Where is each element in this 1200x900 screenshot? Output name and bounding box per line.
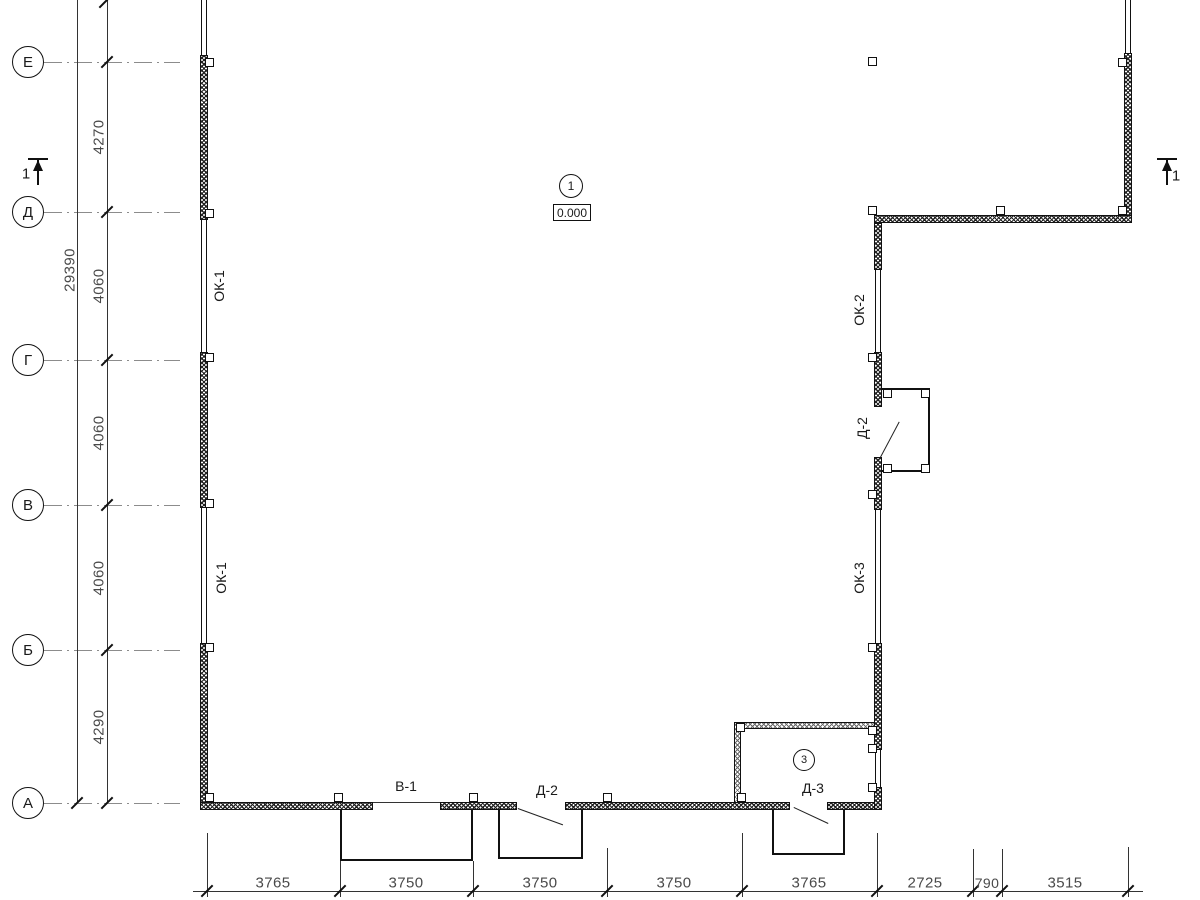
axis-label: Б	[23, 642, 33, 659]
entrance-porch-d3	[772, 810, 845, 855]
elevation-value: 0.000	[557, 206, 587, 220]
wall-jamb-tab	[868, 783, 877, 792]
dim-value-e-d: 4270	[91, 120, 108, 155]
dim-value-bottom-2: 3750	[523, 875, 558, 892]
wall-jamb-tab	[205, 499, 214, 508]
section-arrow-up-icon	[1162, 160, 1172, 171]
axis-line-e	[44, 62, 180, 63]
window-label-ok2: ОК-2	[851, 294, 867, 326]
wall-jamb-tab	[868, 643, 877, 652]
dim-line-total-vertical	[77, 0, 78, 803]
door-label-d3: Д-3	[802, 780, 824, 796]
window-glazing	[201, 0, 207, 55]
wall-jamb-tab	[868, 490, 877, 499]
wall-jamb-tab	[1118, 206, 1127, 215]
dim-value-bottom-1: 3750	[389, 875, 424, 892]
exterior-wall-segment	[1124, 53, 1132, 223]
wall-jamb-tab	[868, 353, 877, 362]
wall-jamb-tab	[205, 209, 214, 218]
interior-wall-segment	[734, 722, 741, 803]
exterior-wall-segment	[874, 457, 882, 510]
opening-lintel-line	[373, 802, 440, 803]
dim-value-g-v: 4060	[91, 416, 108, 451]
wall-jamb-tab	[603, 793, 612, 802]
floor-plan-sheet: Е Д Г В Б А 4270 4060 4060 4060 4290 293…	[0, 0, 1200, 900]
window-glazing-ok3	[875, 510, 881, 643]
window-label-ok1-upper: ОК-1	[211, 270, 227, 302]
window-label-ok1-lower: ОК-1	[213, 562, 229, 594]
wall-jamb-tab	[1118, 58, 1127, 67]
axis-bubble-e: Е	[12, 46, 44, 78]
wall-jamb-tab	[883, 389, 892, 398]
wall-jamb-tab	[334, 793, 343, 802]
wall-jamb-tab	[736, 723, 745, 732]
room-number: 3	[801, 754, 807, 766]
exterior-wall-segment	[200, 802, 373, 810]
elevation-box: 0.000	[553, 204, 591, 221]
axis-label: А	[23, 795, 33, 812]
wall-jamb-tab	[737, 793, 746, 802]
axis-bubble-v: В	[12, 489, 44, 521]
wall-jamb-tab	[921, 389, 930, 398]
interior-wall-segment	[734, 722, 875, 729]
wall-jamb-tab	[205, 643, 214, 652]
axis-line-b	[44, 650, 180, 651]
dim-tick	[99, 0, 112, 8]
exterior-wall-segment	[440, 802, 517, 810]
wall-jamb-tab	[868, 726, 877, 735]
exterior-wall-segment	[200, 352, 208, 508]
exterior-wall-segment	[200, 643, 208, 810]
wall-jamb-tab	[205, 793, 214, 802]
axis-line-a	[44, 803, 180, 804]
section-arrow-up-icon	[33, 160, 43, 171]
door-label-d2-bottom: Д-2	[536, 782, 558, 798]
window-glazing	[1125, 0, 1131, 53]
axis-label: Г	[24, 352, 32, 369]
column-marker	[868, 57, 877, 66]
dim-value-bottom-3: 3750	[657, 875, 692, 892]
wall-jamb-tab	[921, 464, 930, 473]
door-label-d2-right: Д-2	[854, 417, 870, 439]
axis-label: Д	[23, 204, 33, 221]
wall-jamb-tab	[469, 793, 478, 802]
axis-bubble-g: Г	[12, 344, 44, 376]
room-marker-1: 1	[559, 174, 583, 198]
axis-line-d	[44, 212, 180, 213]
dim-value-bottom-6: 790	[975, 875, 1000, 891]
gate-label-v1: В-1	[395, 778, 417, 794]
section-mark-right-number: 1	[1172, 168, 1180, 185]
axis-line-v	[44, 505, 180, 506]
wall-jamb-tab	[883, 464, 892, 473]
axis-bubble-d: Д	[12, 196, 44, 228]
window-glazing	[875, 750, 881, 787]
exterior-wall-segment	[565, 802, 790, 810]
room-marker-3: 3	[793, 749, 815, 771]
dim-value-v-b: 4060	[91, 561, 108, 596]
axis-bubble-a: А	[12, 787, 44, 819]
axis-label: В	[23, 497, 33, 514]
window-glazing-ok1-upper	[201, 220, 207, 352]
wall-jamb-tab	[868, 744, 877, 753]
window-label-ok3: ОК-3	[851, 562, 867, 594]
entrance-porch-v1	[340, 810, 473, 861]
wall-jamb-tab	[868, 206, 877, 215]
dim-value-bottom-7: 3515	[1048, 875, 1083, 892]
axis-line-g	[44, 360, 180, 361]
exterior-wall-segment	[874, 223, 882, 270]
dim-value-b-a: 4290	[91, 710, 108, 745]
dim-value-total: 29390	[62, 248, 79, 292]
axis-bubble-b: Б	[12, 634, 44, 666]
dim-value-bottom-0: 3765	[256, 875, 291, 892]
dim-value-d-g: 4060	[91, 269, 108, 304]
axis-label: Е	[23, 54, 33, 71]
wall-jamb-tab	[205, 58, 214, 67]
exterior-wall-segment	[200, 55, 208, 220]
wall-jamb-tab	[996, 206, 1005, 215]
window-glazing-ok1-lower	[201, 508, 207, 643]
room-number: 1	[568, 179, 575, 193]
section-mark-left-number: 1	[22, 166, 30, 183]
wall-jamb-tab	[205, 353, 214, 362]
exterior-wall-segment	[874, 215, 1132, 223]
dim-value-bottom-5: 2725	[908, 875, 943, 892]
door-vestibule-d2	[882, 388, 930, 472]
window-glazing-ok2	[875, 270, 881, 352]
dim-value-bottom-4: 3765	[792, 875, 827, 892]
